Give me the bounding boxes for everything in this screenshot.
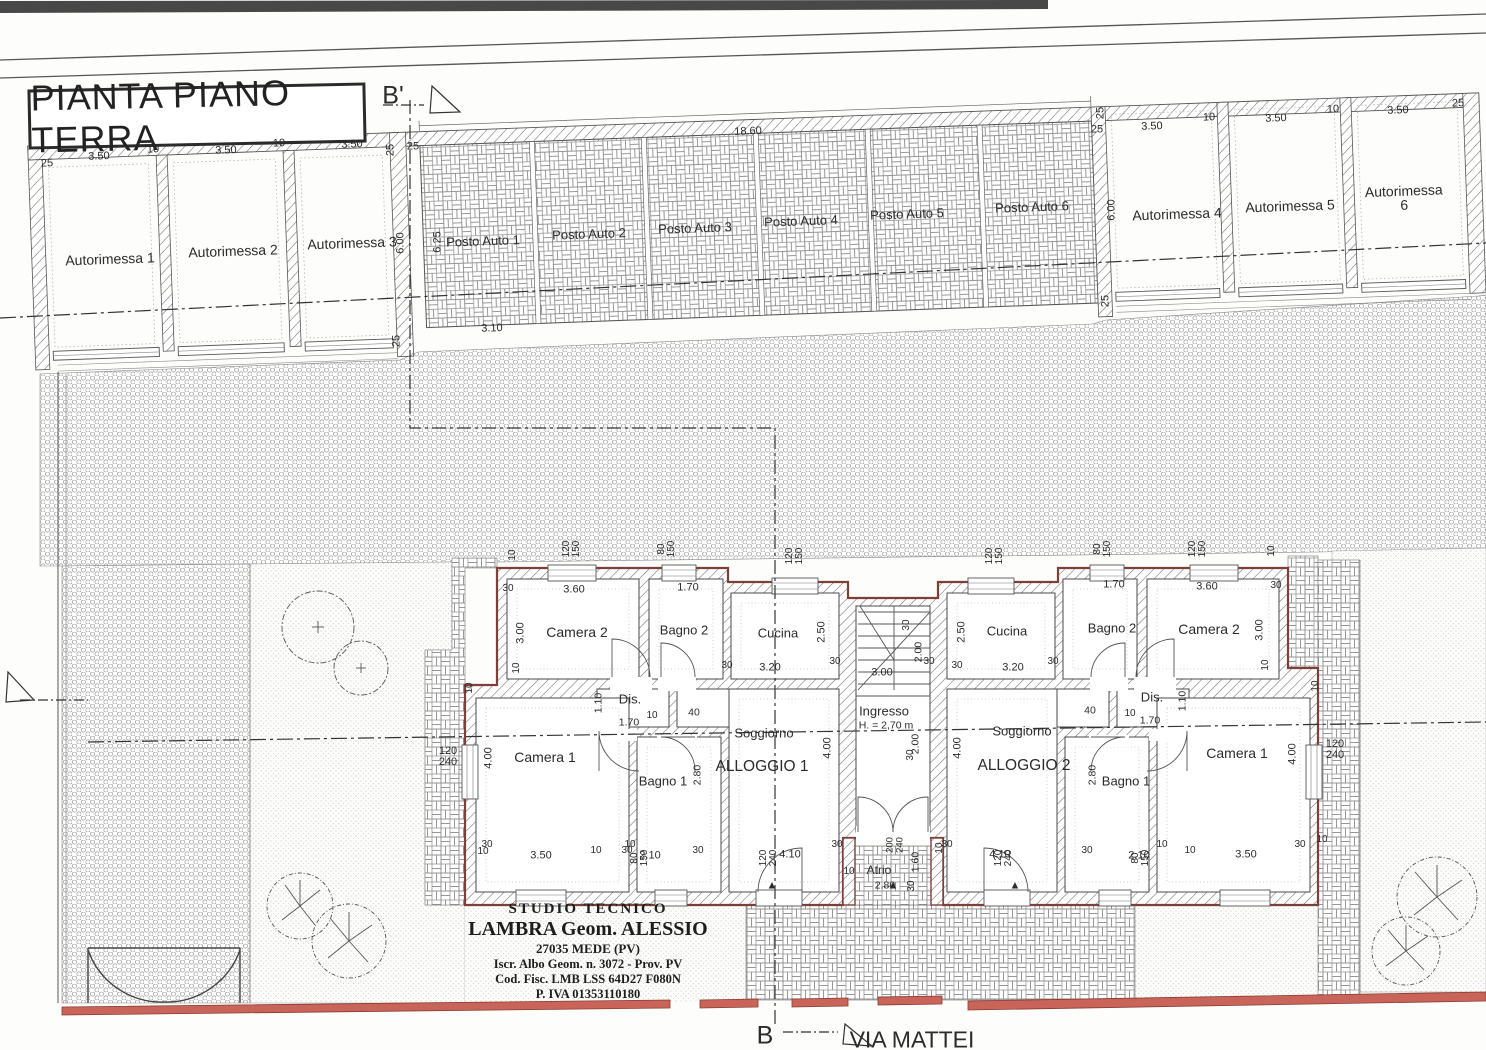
room-camera2-left-box	[507, 579, 639, 679]
room-bagno1-left-box	[637, 737, 721, 892]
room-atrio-box	[855, 846, 931, 905]
room-cucina-left-box	[731, 593, 839, 679]
room-bagno2-right-box	[1063, 579, 1137, 679]
studio-line: P. IVA 01353110180	[438, 987, 738, 1002]
gravel-yard	[40, 295, 1486, 566]
room-soggiorno-left-box	[729, 689, 839, 892]
room-bagno1-right-box	[1065, 737, 1149, 892]
road-and-artifacts	[0, 0, 1486, 78]
floor-plan-drawing	[0, 0, 1486, 1050]
studio-line: STUDIO TECNICO	[438, 901, 738, 918]
studio-line: Cod. Fisc. LMB LSS 64D27 F080N	[438, 972, 738, 987]
room-camera2-right-box	[1147, 579, 1279, 679]
fence-strip	[792, 998, 848, 1007]
building	[462, 565, 1322, 906]
section-arrow-top	[430, 86, 460, 113]
studio-info-block: STUDIO TECNICO LAMBRA Geom. ALESSIO 2703…	[438, 901, 738, 1002]
room-camera1-left-box	[476, 698, 629, 892]
floor-plan-page: PIANTA PIANO TERRA STUDIO TECNICO LAMBRA…	[0, 0, 1486, 1050]
room-cucina-right-box	[947, 593, 1055, 679]
room-bagno2-left-box	[649, 579, 723, 679]
page-title: PIANTA PIANO TERRA	[27, 82, 366, 149]
fence-strip	[878, 996, 942, 1005]
page-title-text: PIANTA PIANO TERRA	[30, 71, 364, 162]
studio-line: 27035 MEDE (PV)	[438, 941, 738, 957]
studio-line: LAMBRA Geom. ALESSIO	[438, 918, 738, 941]
driveway	[62, 564, 250, 1003]
room-soggiorno-right-box	[947, 689, 1057, 892]
section-arrow-left	[6, 672, 34, 702]
garden-bottom-right	[1135, 905, 1318, 1000]
room-camera1-right-box	[1157, 698, 1310, 892]
section-arrow-bottom	[843, 1024, 872, 1046]
studio-line: Iscr. Albo Geom. n. 3072 - Prov. PV	[438, 957, 738, 972]
